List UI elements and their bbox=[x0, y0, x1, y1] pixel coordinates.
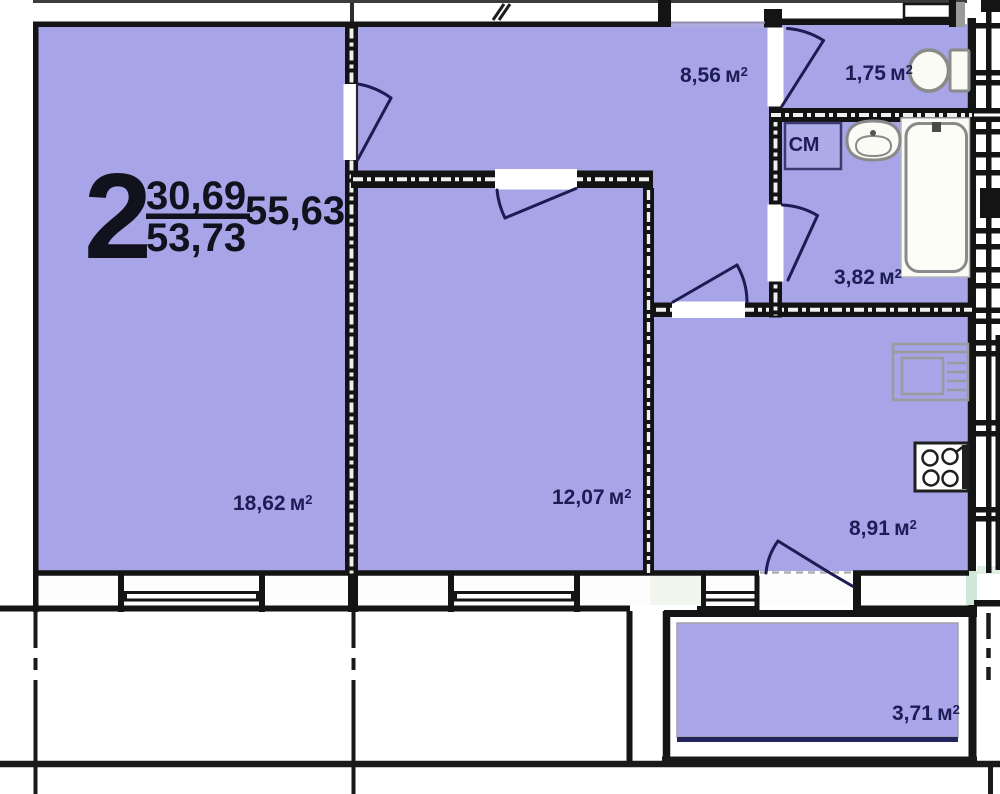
svg-text:СМ: СМ bbox=[789, 134, 820, 156]
svg-text:30,69: 30,69 bbox=[146, 174, 246, 218]
svg-text:1,75 м2: 1,75 м2 bbox=[845, 62, 913, 85]
svg-text:18,62 м2: 18,62 м2 bbox=[233, 492, 313, 515]
svg-text:53,73: 53,73 bbox=[146, 216, 246, 260]
svg-text:8,91 м2: 8,91 м2 bbox=[849, 517, 917, 540]
svg-text:2: 2 bbox=[84, 148, 152, 284]
svg-text:3,71 м2: 3,71 м2 bbox=[892, 702, 960, 725]
svg-text:55,63: 55,63 bbox=[245, 189, 345, 233]
svg-text:12,07 м2: 12,07 м2 bbox=[552, 486, 632, 509]
svg-text:3,82 м2: 3,82 м2 bbox=[834, 266, 902, 289]
svg-text:8,56 м2: 8,56 м2 bbox=[680, 64, 748, 87]
